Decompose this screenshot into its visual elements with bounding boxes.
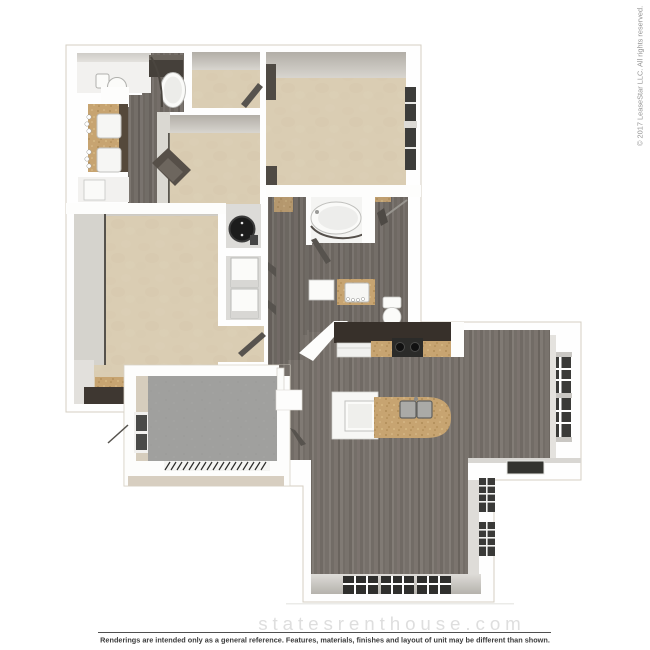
svg-text:statesrenthouse.com: statesrenthouse.com: [258, 613, 525, 634]
svg-text:Renderings are intended only a: Renderings are intended only as a genera…: [100, 636, 550, 645]
svg-text:© 2017 LeaseStar LLC. All righ: © 2017 LeaseStar LLC. All rights reserve…: [636, 6, 645, 146]
